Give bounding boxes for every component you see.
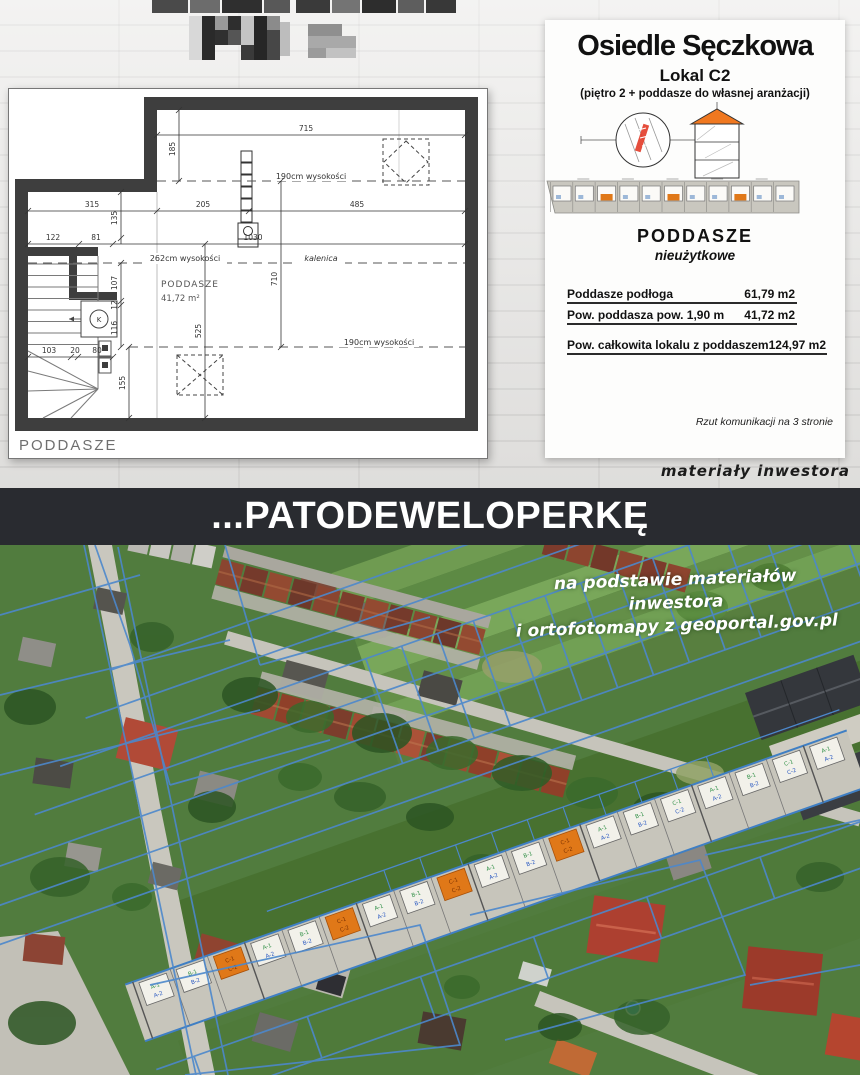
svg-text:103: 103 bbox=[42, 346, 57, 355]
composite-graphic: { "logo": {"name": "censored-logo"}, "pa… bbox=[0, 0, 860, 1075]
svg-text:107: 107 bbox=[110, 276, 119, 291]
svg-text:122: 122 bbox=[46, 233, 61, 242]
spec-value: 61,79 m2 bbox=[744, 287, 795, 301]
spec-row: Poddasze podłoga 61,79 m2 bbox=[567, 286, 797, 304]
svg-text:525: 525 bbox=[194, 324, 203, 339]
attic-roof bbox=[691, 109, 743, 124]
spec-value: 124,97 m2 bbox=[769, 338, 826, 352]
spec-row: Pow. całkowita lokalu z poddaszem 124,97… bbox=[567, 337, 827, 355]
svg-text:315: 315 bbox=[85, 200, 100, 209]
panel-footnote: Rzut komunikacji na 3 stronie bbox=[696, 416, 833, 428]
room-name: PODDASZE bbox=[161, 280, 219, 290]
caption-text: ...PATODEWELOPERKĘ bbox=[211, 495, 649, 538]
svg-text:1030: 1030 bbox=[243, 233, 262, 242]
map-credit: na podstawie materiałów inwestora i orto… bbox=[505, 563, 847, 644]
svg-text:116: 116 bbox=[110, 321, 119, 336]
highlighted-diagram-unit bbox=[601, 194, 613, 201]
floorplan-sheet: K 190cm wy bbox=[8, 88, 488, 459]
units-row-diagram bbox=[547, 179, 799, 213]
spec-label: Pow. całkowita lokalu z poddaszem bbox=[567, 338, 769, 352]
estate-title: Osiedle Sęczkowa bbox=[549, 30, 841, 63]
svg-text:715: 715 bbox=[299, 124, 314, 133]
svg-text:710: 710 bbox=[270, 272, 279, 287]
spec-label: Poddasze podłoga bbox=[567, 287, 673, 301]
svg-text:485: 485 bbox=[350, 200, 365, 209]
svg-text:20: 20 bbox=[70, 346, 80, 355]
censored-logo bbox=[150, 0, 460, 64]
svg-text:81: 81 bbox=[91, 233, 101, 242]
floor-subheading: nieużytkowe bbox=[545, 248, 845, 263]
svg-text:155: 155 bbox=[118, 376, 127, 391]
unit-name: Lokal C2 bbox=[545, 66, 845, 86]
investor-materials-watermark: materiały inwestora bbox=[661, 462, 850, 480]
spec-value: 41,72 m2 bbox=[744, 308, 795, 322]
height-190-lower: 190cm wysokości bbox=[344, 337, 414, 347]
svg-text:205: 205 bbox=[196, 200, 211, 209]
caption-banner: ...PATODEWELOPERKĘ bbox=[0, 488, 860, 545]
svg-text:12: 12 bbox=[110, 300, 119, 310]
spec-row: Pow. poddasza pow. 1,90 m 41,72 m2 bbox=[567, 307, 797, 325]
spec-label: Pow. poddasza pow. 1,90 m bbox=[567, 308, 724, 322]
floorplan-drawing: K 190cm wy bbox=[9, 89, 487, 458]
room-area: 41,72 m² bbox=[161, 294, 200, 304]
height-190-upper: 190cm wysokości bbox=[276, 171, 346, 181]
building-section bbox=[691, 102, 743, 178]
pixel-mosaic bbox=[152, 0, 456, 60]
height-262: 262cm wysokości bbox=[150, 253, 220, 263]
location-diagram bbox=[545, 100, 845, 222]
sheet-title: PODDASZE bbox=[19, 437, 118, 454]
svg-text:80: 80 bbox=[92, 346, 102, 355]
aerial-map: A-1A-2B-1B-2C-1C-2A-1A-2B-1B-2C-1C-2A-1A… bbox=[0, 545, 860, 1075]
ridge-label: kalenica bbox=[304, 254, 337, 263]
highlighted-diagram-unit bbox=[734, 194, 746, 201]
skylight-lower bbox=[177, 355, 223, 395]
highlighted-diagram-unit bbox=[668, 194, 680, 201]
spec-list: Poddasze podłoga 61,79 m2 Pow. poddasza … bbox=[567, 286, 825, 358]
svg-text:185: 185 bbox=[168, 142, 177, 157]
svg-text:135: 135 bbox=[110, 211, 119, 226]
offer-panel: Osiedle Sęczkowa Lokal C2 (piętro 2 + po… bbox=[545, 20, 845, 458]
boiler-room: K bbox=[69, 301, 117, 373]
boiler-label: K bbox=[97, 316, 102, 324]
floor-heading: PODDASZE bbox=[545, 226, 845, 247]
site-circle bbox=[581, 113, 705, 167]
skylight-upper bbox=[383, 139, 429, 185]
unit-note: (piętro 2 + poddasze do własnej aranżacj… bbox=[545, 88, 845, 100]
brick-wall-background: K 190cm wy bbox=[0, 0, 860, 488]
